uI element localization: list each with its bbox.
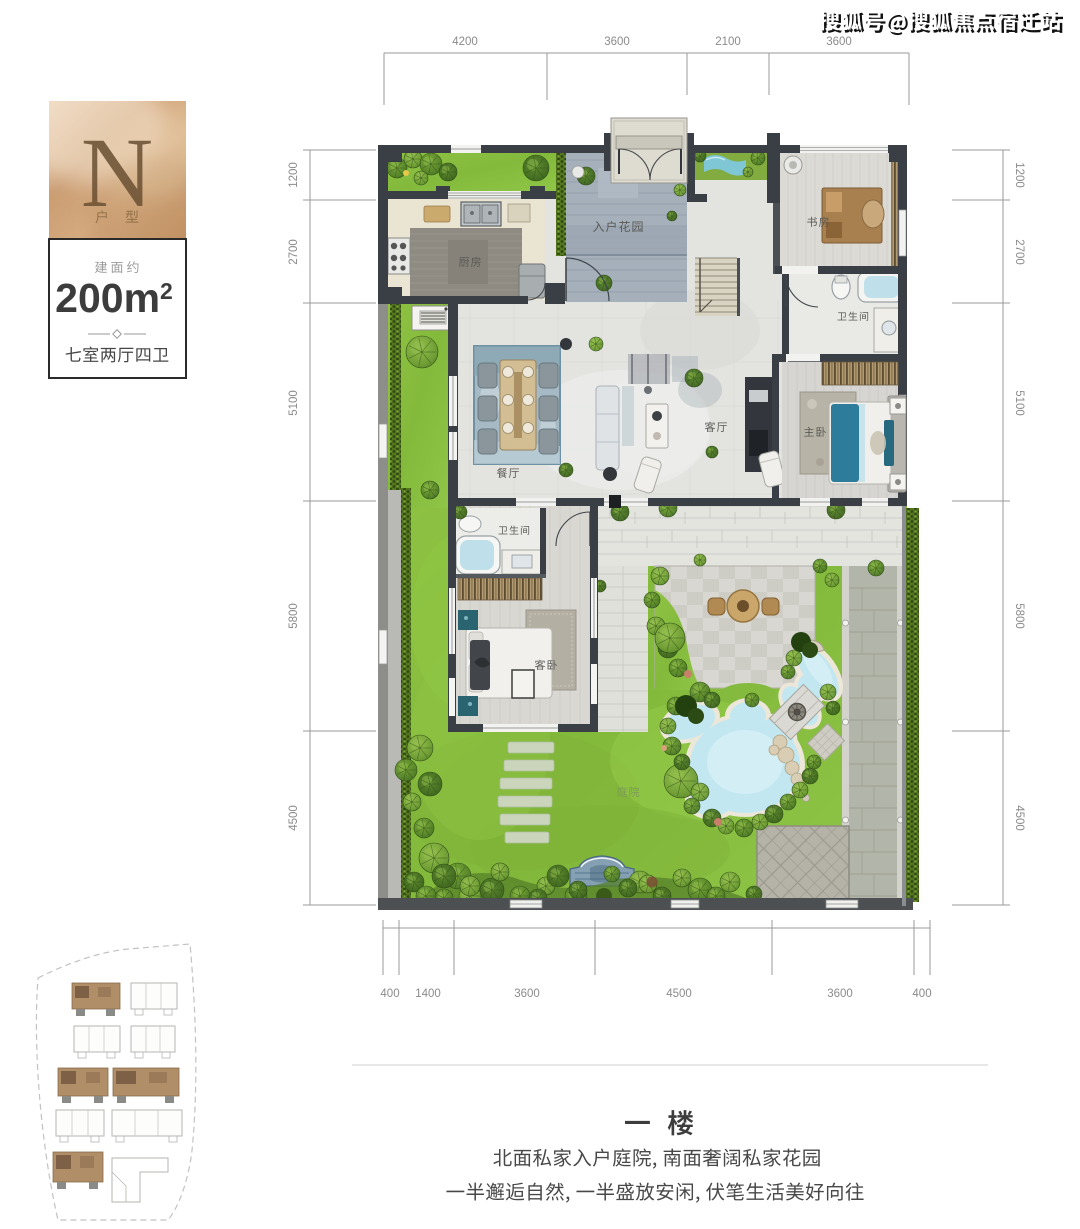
svg-text:1200: 1200 — [1013, 162, 1025, 188]
svg-text:400: 400 — [912, 988, 931, 1000]
svg-text:2100: 2100 — [715, 36, 741, 48]
svg-text:4500: 4500 — [1013, 805, 1025, 831]
svg-text:4500: 4500 — [666, 988, 692, 1000]
svg-text:5800: 5800 — [288, 603, 300, 629]
svg-text:2700: 2700 — [1013, 239, 1025, 265]
svg-text:5100: 5100 — [1013, 390, 1025, 416]
svg-text:3600: 3600 — [514, 988, 540, 1000]
svg-text:3600: 3600 — [827, 988, 853, 1000]
svg-text:400: 400 — [380, 988, 399, 1000]
svg-text:5800: 5800 — [1013, 603, 1025, 629]
svg-text:3600: 3600 — [604, 36, 630, 48]
svg-text:1400: 1400 — [415, 988, 441, 1000]
svg-text:200m2: 200m2 — [55, 275, 173, 321]
svg-text:N: N — [81, 117, 153, 228]
svg-text:4200: 4200 — [452, 36, 478, 48]
svg-text:2700: 2700 — [288, 239, 300, 265]
svg-text:4500: 4500 — [288, 805, 300, 831]
svg-text:3600: 3600 — [826, 36, 852, 48]
svg-text:1200: 1200 — [288, 162, 300, 188]
svg-text:5100: 5100 — [288, 390, 300, 416]
